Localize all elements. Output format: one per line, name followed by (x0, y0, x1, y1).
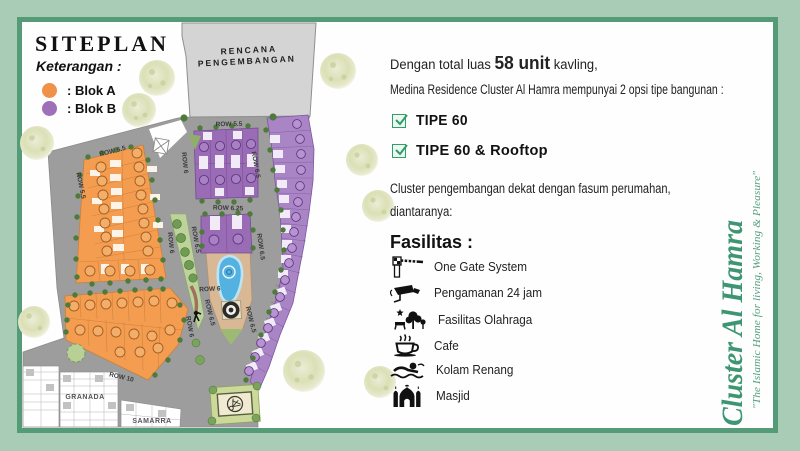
svg-text:Cluster Al Hamra: Cluster Al Hamra (716, 220, 749, 426)
svg-text:"The Islamic Home for living,: "The Islamic Home for living, Working & … (752, 170, 763, 409)
